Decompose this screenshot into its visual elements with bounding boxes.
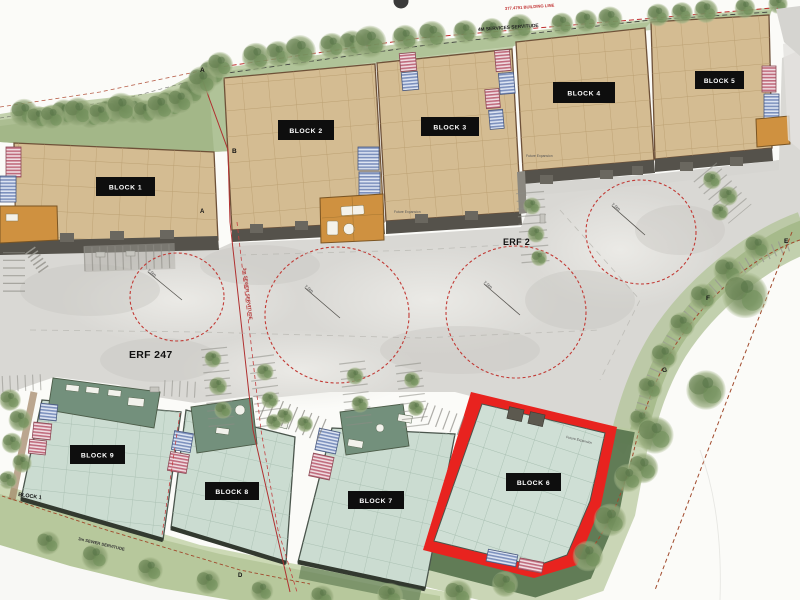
svg-text:E: E bbox=[784, 238, 789, 245]
svg-text:BLOCK 8: BLOCK 8 bbox=[215, 489, 248, 496]
svg-text:BLOCK 1: BLOCK 1 bbox=[109, 185, 142, 192]
svg-text:BLOCK 6: BLOCK 6 bbox=[517, 480, 550, 487]
svg-text:BLOCK 5: BLOCK 5 bbox=[704, 78, 735, 85]
svg-text:BLOCK 4: BLOCK 4 bbox=[567, 91, 600, 98]
svg-text:G: G bbox=[662, 367, 667, 374]
svg-text:B: B bbox=[232, 148, 237, 155]
svg-text:D: D bbox=[238, 573, 243, 579]
svg-text:BLOCK 7: BLOCK 7 bbox=[359, 498, 392, 505]
svg-text:Future Expansion: Future Expansion bbox=[526, 154, 553, 158]
svg-text:F: F bbox=[706, 295, 710, 302]
svg-text:BLOCK 9: BLOCK 9 bbox=[81, 453, 114, 460]
svg-text:ERF 247: ERF 247 bbox=[129, 349, 173, 361]
svg-text:Future Expansion: Future Expansion bbox=[394, 210, 421, 214]
svg-text:A: A bbox=[200, 209, 205, 215]
svg-text:BLOCK 2: BLOCK 2 bbox=[289, 128, 322, 135]
svg-text:ERF 2: ERF 2 bbox=[503, 237, 530, 247]
svg-text:BLOCK 3: BLOCK 3 bbox=[433, 125, 466, 132]
svg-text:A: A bbox=[200, 67, 205, 74]
